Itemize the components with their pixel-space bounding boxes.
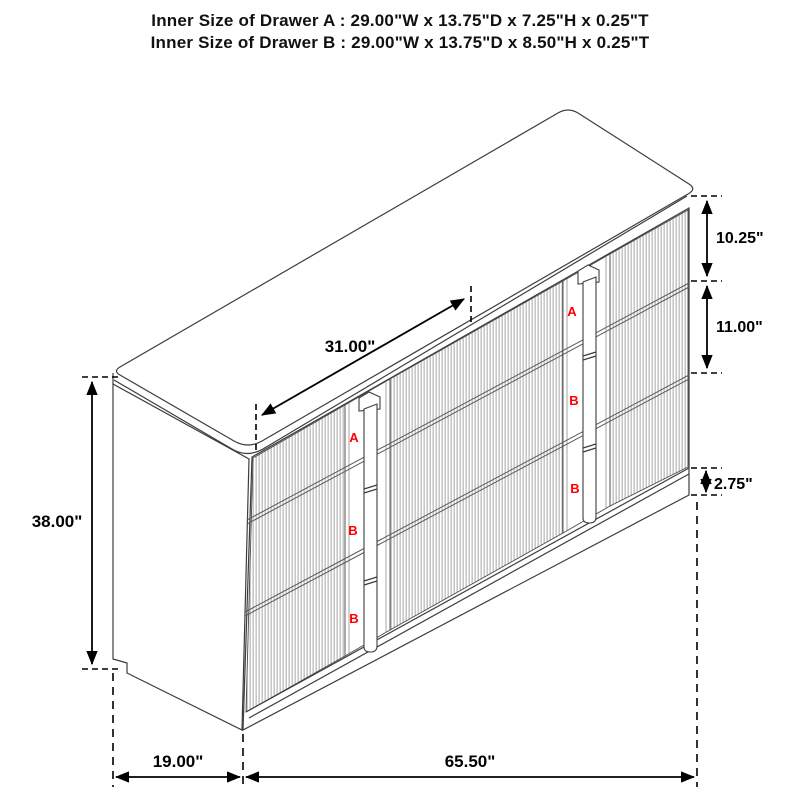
cabinet-drawing: A B B A B B [113, 110, 693, 730]
drawer-label-left-b2: B [349, 611, 358, 626]
drawer-label-left-b1: B [348, 523, 357, 538]
dim-base-height: 2.75" [691, 468, 753, 495]
fluted-door-right [610, 210, 688, 506]
drawer-label-right-b2: B [570, 481, 579, 496]
dim-1025-label: 10.25" [716, 230, 764, 247]
dim-275-label: 2.75" [714, 476, 753, 493]
drawer-label-right-b1: B [569, 393, 578, 408]
dim-drawer-b-height: 11.00" [691, 286, 763, 373]
drawer-label-right-a: A [567, 304, 577, 319]
dim-38-label: 38.00" [32, 512, 83, 531]
drawer-label-left-a: A [349, 430, 359, 445]
dim-31-label: 31.00" [325, 337, 376, 356]
diagram-stage: Inner Size of Drawer A : 29.00"W x 13.75… [0, 0, 800, 800]
cabinet-dimension-diagram: A B B A B B 31.00" 38.00" 10.25" [0, 0, 800, 800]
dim-11-label: 11.00" [716, 319, 763, 336]
handle-left-bar [364, 404, 377, 652]
dim-655-label: 65.50" [445, 752, 496, 771]
dim-19-label: 19.00" [153, 752, 204, 771]
handle-right-bar [583, 277, 596, 523]
dim-overall-height: 38.00" [32, 377, 120, 669]
dim-drawer-a-height: 10.25" [691, 196, 764, 281]
